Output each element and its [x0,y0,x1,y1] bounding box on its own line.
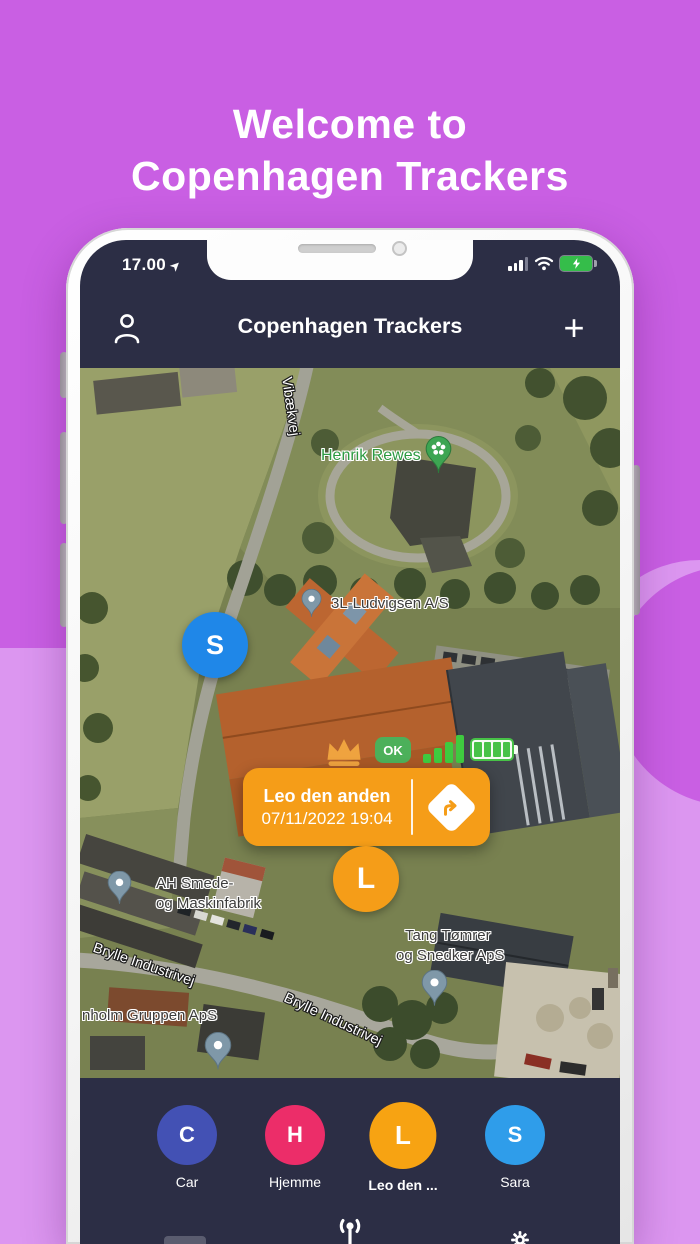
wifi-icon [534,256,554,271]
tracker-label-hjemme: Hjemme [265,1174,325,1190]
tracker-timestamp: 07/11/2022 19:04 [243,808,411,830]
battery-charging-icon [560,256,592,271]
location-services-icon: ➤ [166,256,185,275]
phone-frame: 17.00➤ [66,228,634,1244]
tracker-marker-leo-letter: L [357,862,375,896]
settings-gear-icon[interactable] [502,1230,538,1244]
satellite-map[interactable]: Vibækvej Brylle Industrivej Brylle Indus… [80,368,620,1078]
navigate-section [413,789,490,826]
status-bar-time: 17.00➤ [122,255,181,275]
poi-label-ludvigsen: 3L-Ludvigsen A/S [331,594,449,614]
tracker-marker-leo[interactable]: L [333,846,399,912]
tracker-item-leo[interactable]: L Leo den ... [368,1102,437,1193]
poi-label-nholm-gruppen: nholm Gruppen ApS [82,1006,217,1026]
selected-tracker-status-row: OK [323,730,523,768]
crown-icon [323,734,365,767]
tracker-item-hjemme[interactable]: H Hjemme [265,1105,325,1190]
tracker-label-sara: Sara [485,1174,545,1190]
antenna-broadcast-icon[interactable] [331,1217,369,1244]
tracker-bar: C Car H Hjemme L Leo den ... S Sara [80,1078,620,1244]
map-layers-button[interactable] [164,1236,206,1244]
tracker-name: Leo den anden [243,784,411,808]
speaker-grille [298,244,376,253]
directions-button[interactable] [425,781,477,833]
tracker-item-sara[interactable]: S Sara [485,1105,545,1190]
signal-strength-icon [423,734,464,763]
tracker-item-car[interactable]: C Car [157,1105,217,1190]
tracker-marker-sara[interactable]: S [182,612,248,678]
tracker-marker-sara-letter: S [206,630,224,661]
cellular-signal-icon [508,257,528,271]
status-bar-indicators [508,256,592,271]
status-ok-badge: OK [375,737,411,763]
poi-label-tang-tomrer: Tang Tømrer og Snedker ApS [396,926,504,966]
tracker-info-text: Leo den anden 07/11/2022 19:04 [243,784,411,830]
phone-screen: 17.00➤ [80,240,620,1244]
tracker-avatar-leo[interactable]: L [369,1102,436,1169]
tracker-label-car: Car [157,1174,217,1190]
directions-arrow-icon [441,796,463,818]
battery-level-icon [470,738,514,761]
poi-label-ah-smede: AH Smede- og Maskinfabrik [156,874,261,914]
front-camera [392,241,407,256]
add-tracker-button[interactable]: + [556,308,592,348]
hero-title-line1: Welcome to [0,98,700,150]
poi-label-henrik-rewes: Henrik Rewes [321,446,421,466]
tang-tomrer-pin-icon [421,970,448,1007]
tracker-info-callout[interactable]: Leo den anden 07/11/2022 19:04 [243,768,490,846]
hero-title-line2: Copenhagen Trackers [0,150,700,202]
tracker-avatar-hjemme[interactable]: H [265,1105,325,1165]
ludvigsen-pin-icon [301,589,322,618]
ah-smede-pin-icon [107,871,132,905]
tracker-avatar-car[interactable]: C [157,1105,217,1165]
henrik-rewes-pin-icon [425,436,452,474]
app-header: Copenhagen Trackers + [80,292,620,368]
hero-title: Welcome to Copenhagen Trackers [0,98,700,202]
app-title: Copenhagen Trackers [80,314,620,339]
tracker-avatar-sara[interactable]: S [485,1105,545,1165]
tracker-label-leo: Leo den ... [368,1177,437,1193]
welcome-screen: Welcome to Copenhagen Trackers 17.00➤ [0,0,700,1244]
nholm-gruppen-pin-icon [204,1032,232,1071]
